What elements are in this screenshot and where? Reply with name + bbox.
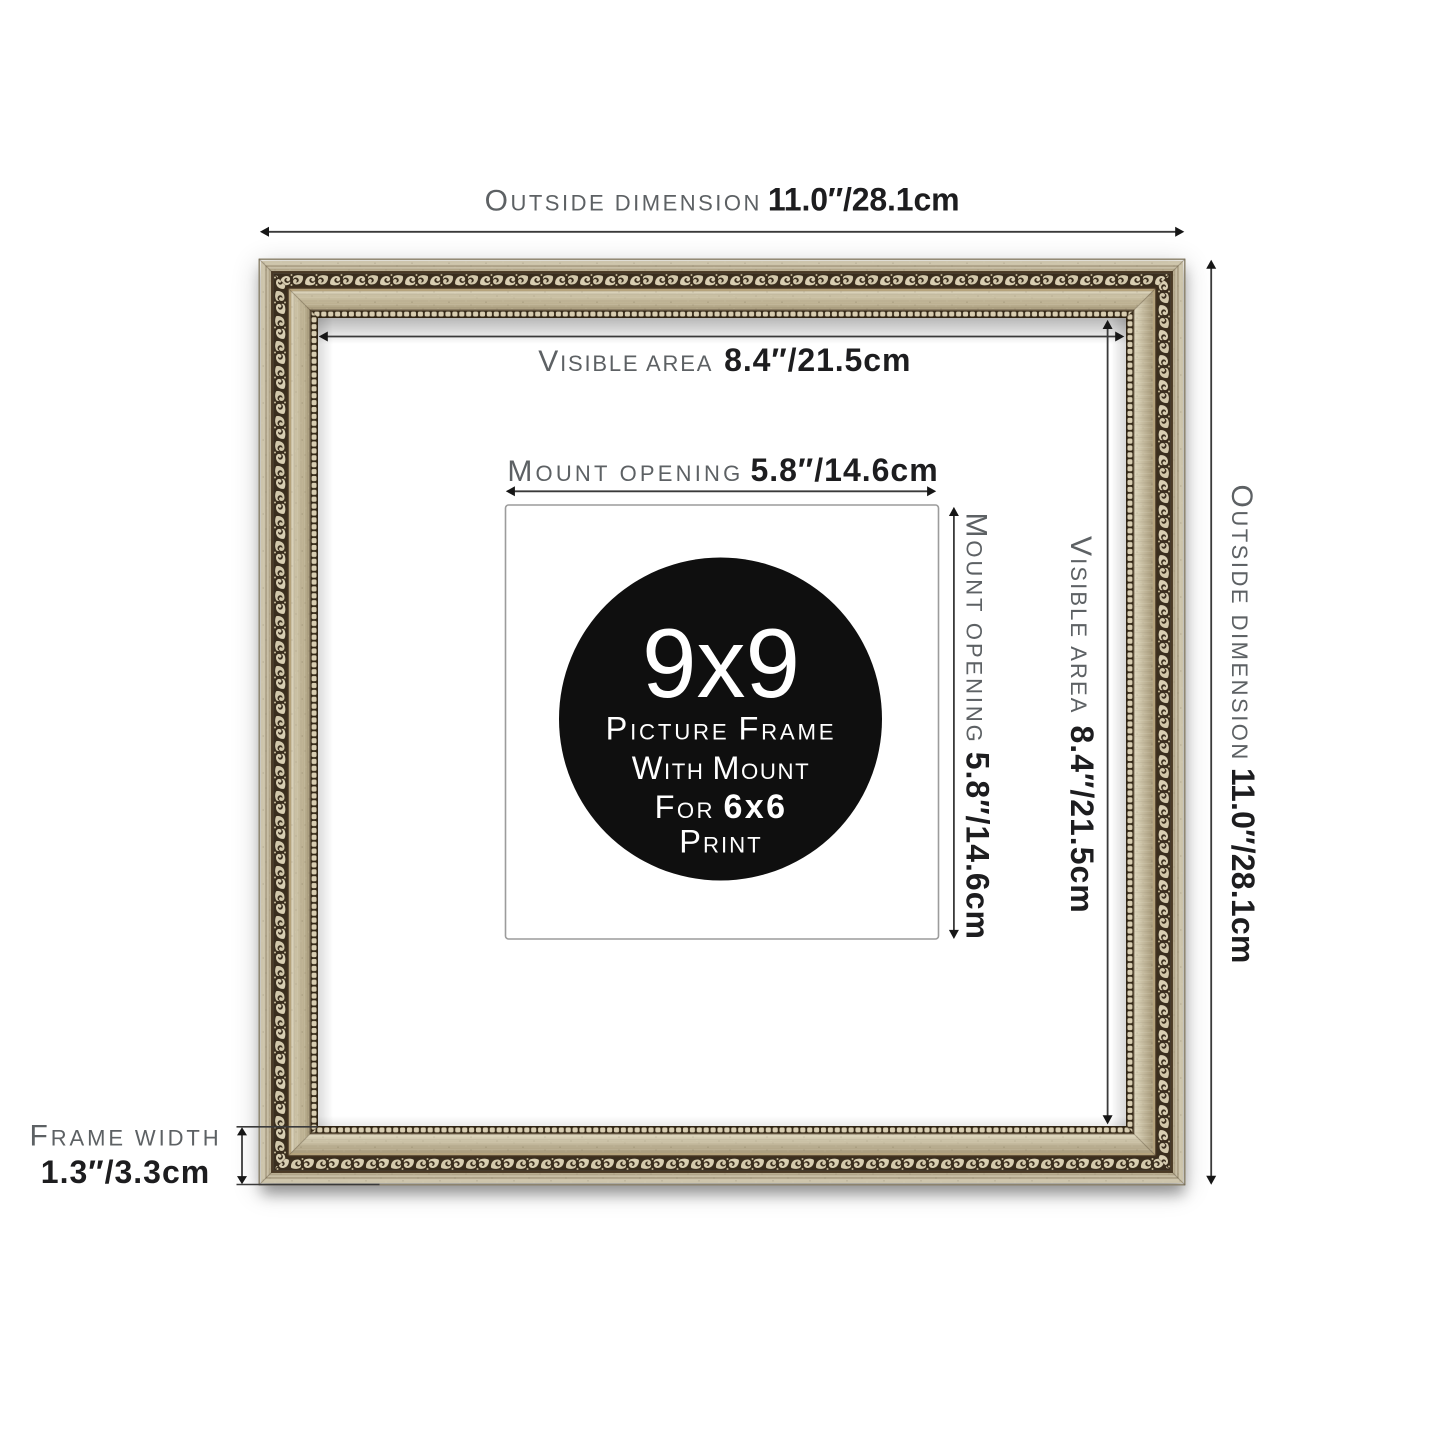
svg-text:9x9: 9x9 (642, 608, 800, 718)
svg-text:1.3″/3.3cm: 1.3″/3.3cm (41, 1154, 210, 1190)
